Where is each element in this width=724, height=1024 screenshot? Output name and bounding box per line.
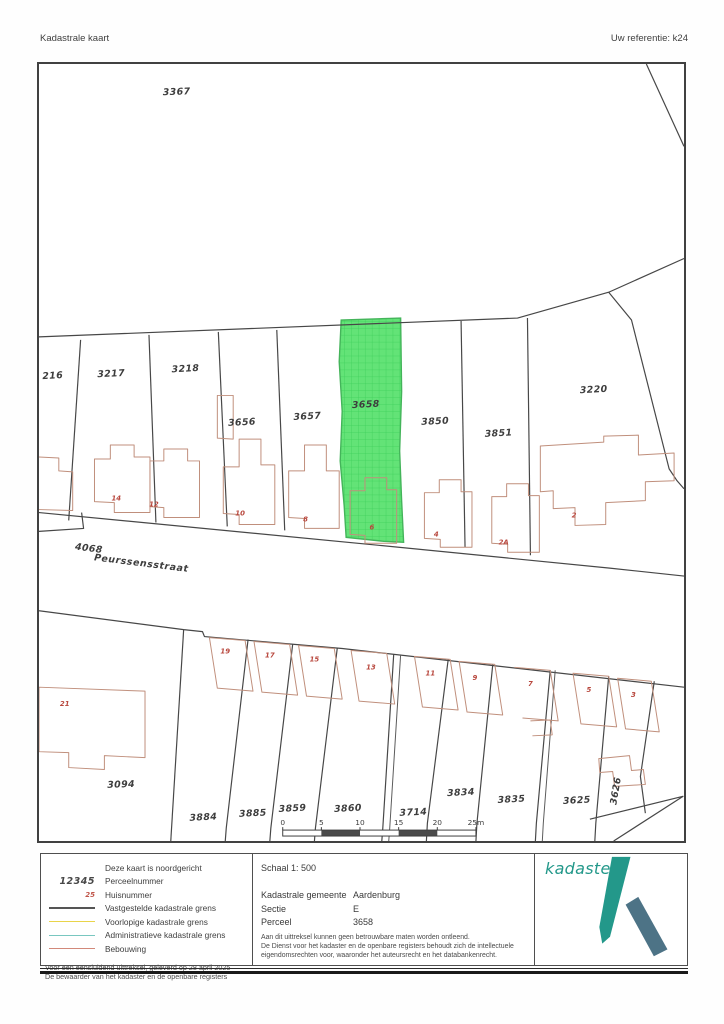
legend-row: Voorlopige kadastrale grens <box>45 915 248 929</box>
parcel-label: 3218 <box>171 363 199 375</box>
legend-label: Deze kaart is noordgericht <box>105 863 202 873</box>
parcel-label: 3850 <box>421 415 449 427</box>
parcel-label: 3860 <box>334 803 362 815</box>
house-number-label: 21 <box>60 700 70 708</box>
parcel-info-rows: Kadastrale gemeenteAardenburgSectieEPerc… <box>261 889 524 930</box>
parcel-label: 3658 <box>352 399 380 411</box>
scale-tick-label: 5 <box>319 818 324 827</box>
parcel-label: 3217 <box>97 368 125 380</box>
house-number-label: 2 <box>572 511 577 519</box>
info-value: Aardenburg <box>353 889 400 903</box>
legend-symbol <box>45 921 105 922</box>
parcel-label: 3094 <box>107 779 135 791</box>
legend-row: 12345Perceelnummer <box>45 875 248 889</box>
footer-line: De Dienst voor het kadaster en de openba… <box>261 942 524 951</box>
house-number-label: 11 <box>426 669 436 677</box>
scale-tick-label: 20 <box>433 818 443 827</box>
house-number-label: 2A <box>499 538 509 546</box>
legend-label: Perceelnummer <box>105 876 164 886</box>
house-number-label: 9 <box>473 674 478 682</box>
info-label: Perceel <box>261 916 353 930</box>
parcel-label: 3859 <box>278 803 306 815</box>
parcel-label: 3714 <box>399 806 427 818</box>
scale-tick-label: 25m <box>468 818 485 827</box>
page-title: Kadastrale kaart <box>40 33 109 44</box>
cadastral-map: 0510152025m 3367216321732183656365736583… <box>39 64 684 841</box>
legend-symbol <box>45 935 105 936</box>
street-name-label: Peurssensstraat <box>94 552 190 575</box>
info-row: Kadastrale gemeenteAardenburg <box>261 889 524 903</box>
bottom-rule <box>40 968 688 974</box>
info-value: 3658 <box>353 916 373 930</box>
legend-label: Huisnummer <box>105 890 152 900</box>
parcel-label: 3367 <box>163 86 191 98</box>
legend-row: Administratieve kadastrale grens <box>45 929 248 943</box>
legend-panel: Deze kaart is noordgericht12345Perceelnu… <box>40 853 688 966</box>
legend-label: Administratieve kadastrale grens <box>105 930 225 940</box>
legend-symbol: 12345 <box>45 876 105 887</box>
parcel-label: 3626 <box>608 776 624 805</box>
info-label: Kadastrale gemeente <box>261 889 353 903</box>
house-number-label: 8 <box>303 515 308 523</box>
map-frame: 0510152025m 3367216321732183656365736583… <box>37 62 686 843</box>
logo-column: kadaster <box>535 854 687 965</box>
house-number-label: 13 <box>366 663 376 671</box>
legend-symbol <box>45 948 105 949</box>
footer-right-text: Aan dit uittreksel kunnen geen betrouwba… <box>261 933 524 960</box>
legend-label: Vastgestelde kadastrale grens <box>105 903 216 913</box>
scale-text: Schaal 1: 500 <box>261 863 524 873</box>
house-number-label: 15 <box>310 655 320 663</box>
scale-tick-label: 0 <box>280 818 285 827</box>
legend-row: 25Huisnummer <box>45 888 248 902</box>
info-row: SectieE <box>261 903 524 917</box>
parcel-label: 3220 <box>580 384 608 396</box>
house-number-label: 12 <box>149 501 159 509</box>
kadaster-logo-icon <box>535 854 687 965</box>
parcel-label: 3835 <box>497 794 525 806</box>
legend-symbol: 25 <box>45 891 105 899</box>
highlighted-parcel-3658 <box>339 318 403 542</box>
cadastral-extract-page: Kadastrale kaart Uw referentie: k24 <box>0 0 724 1024</box>
parcel-label: 3656 <box>228 416 256 428</box>
house-number-label: 17 <box>265 651 275 659</box>
footer-line: Aan dit uittreksel kunnen geen betrouwba… <box>261 933 524 942</box>
parcel-label: 3885 <box>239 807 267 819</box>
parcel-label: 3625 <box>563 795 591 807</box>
parcel-label: 3834 <box>447 787 475 799</box>
parcel-label: 216 <box>42 370 63 382</box>
house-number-label: 19 <box>220 647 230 655</box>
house-number-label: 7 <box>528 680 533 688</box>
scale-tick-label: 15 <box>394 818 404 827</box>
info-label: Sectie <box>261 903 353 917</box>
legend-column: Deze kaart is noordgericht12345Perceelnu… <box>41 854 253 965</box>
info-column: Schaal 1: 500 Kadastrale gemeenteAardenb… <box>253 854 535 965</box>
parcel-label: 3851 <box>484 427 512 439</box>
legend-items: Deze kaart is noordgericht12345Perceelnu… <box>45 861 248 956</box>
house-number-label: 14 <box>111 495 121 503</box>
house-number-label: 6 <box>369 523 374 531</box>
reference-label: Uw referentie: k24 <box>611 33 688 44</box>
legend-row: Bebouwing <box>45 942 248 956</box>
legend-label: Bebouwing <box>105 944 146 954</box>
legend-symbol <box>45 907 105 909</box>
house-number-label: 4 <box>434 530 439 538</box>
parcel-label: 3657 <box>293 411 321 423</box>
legend-row: Deze kaart is noordgericht <box>45 861 248 875</box>
house-number-label: 3 <box>631 691 636 699</box>
info-row: Perceel3658 <box>261 916 524 930</box>
legend-label: Voorlopige kadastrale grens <box>105 917 208 927</box>
house-number-label: 5 <box>586 686 591 694</box>
info-value: E <box>353 903 359 917</box>
map-labels: 3367216321732183656365736583850385132204… <box>42 86 636 824</box>
parcel-label: 3884 <box>189 811 217 823</box>
scale-tick-label: 10 <box>355 818 365 827</box>
house-number-label: 10 <box>235 510 245 518</box>
legend-row: Vastgestelde kadastrale grens <box>45 902 248 916</box>
footer-line: eigendomsrechten voor, waaronder het aut… <box>261 951 524 960</box>
